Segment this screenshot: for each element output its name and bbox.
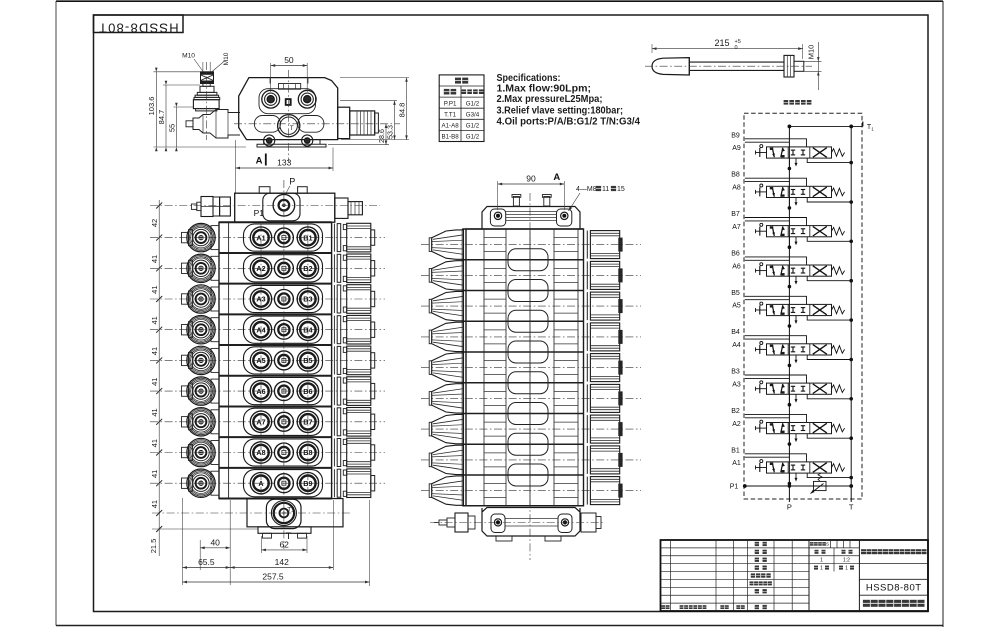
- svg-text:41: 41: [150, 408, 159, 416]
- svg-text:41: 41: [150, 470, 159, 478]
- svg-text:215: 215: [714, 38, 729, 48]
- svg-text:103.6: 103.6: [147, 97, 156, 116]
- svg-text:41: 41: [150, 347, 159, 355]
- svg-text:T: T: [290, 125, 294, 132]
- svg-text:P.P1: P.P1: [444, 100, 457, 107]
- svg-text:HSSD8-80T: HSSD8-80T: [866, 583, 922, 594]
- svg-text:41: 41: [150, 439, 159, 447]
- svg-text:A3: A3: [732, 381, 741, 388]
- svg-text:21.5: 21.5: [149, 539, 158, 554]
- svg-text:B4: B4: [731, 329, 740, 336]
- svg-text:A4: A4: [732, 342, 741, 349]
- svg-text:G1/2: G1/2: [466, 100, 480, 107]
- svg-text:A1: A1: [732, 460, 741, 467]
- svg-text:84.8: 84.8: [398, 103, 407, 118]
- svg-text:B6: B6: [731, 250, 740, 257]
- svg-text:1: 1: [820, 557, 823, 563]
- svg-text:15: 15: [617, 186, 625, 193]
- svg-text:G3/4: G3/4: [466, 112, 480, 119]
- svg-text:B3: B3: [731, 369, 740, 376]
- svg-text:P: P: [289, 177, 295, 187]
- svg-text:A8: A8: [732, 185, 741, 192]
- svg-text:P: P: [787, 503, 792, 512]
- svg-text:A: A: [553, 172, 560, 183]
- svg-text:2.Max pressureL25Mpa;: 2.Max pressureL25Mpa;: [497, 93, 603, 105]
- svg-text:142: 142: [275, 557, 289, 567]
- svg-text:B8: B8: [731, 172, 740, 179]
- svg-text:41: 41: [150, 255, 159, 263]
- svg-text:55: 55: [167, 124, 176, 132]
- svg-text:B2: B2: [731, 408, 740, 415]
- svg-text:A5: A5: [732, 303, 741, 310]
- svg-text:B7: B7: [731, 211, 740, 218]
- svg-text:1:2: 1:2: [843, 557, 850, 563]
- svg-text:41: 41: [150, 285, 159, 293]
- svg-text:T: T: [849, 503, 854, 512]
- svg-text:T.T1: T.T1: [444, 112, 457, 119]
- svg-text:41: 41: [150, 500, 159, 508]
- svg-text:A6: A6: [732, 263, 741, 270]
- svg-text:A: A: [256, 156, 263, 167]
- svg-text:11: 11: [602, 186, 609, 193]
- svg-text:40: 40: [210, 537, 220, 547]
- svg-text:84.7: 84.7: [157, 110, 166, 125]
- svg-text:4—M8: 4—M8: [576, 186, 597, 193]
- svg-text:A1-A8: A1-A8: [441, 123, 459, 130]
- svg-text:A7: A7: [732, 224, 741, 231]
- svg-text:G1/2: G1/2: [466, 123, 480, 130]
- svg-text:0: 0: [735, 45, 738, 51]
- svg-text:G1/2: G1/2: [466, 134, 480, 141]
- svg-text:90: 90: [526, 174, 536, 184]
- svg-text:1: 1: [820, 565, 823, 571]
- svg-text:B5: B5: [731, 290, 740, 297]
- svg-text:M10: M10: [182, 53, 195, 60]
- svg-text:P1: P1: [254, 208, 265, 218]
- svg-text:4.Oil ports:P/A/B:G1/2 T/N:G3: 4.Oil ports:P/A/B:G1/2 T/N:G3/4: [497, 116, 641, 128]
- svg-text:65.5: 65.5: [198, 557, 215, 567]
- svg-text:B9: B9: [731, 132, 740, 139]
- svg-text:B1-B8: B1-B8: [441, 134, 459, 141]
- svg-text:B1: B1: [731, 447, 740, 454]
- svg-text:M10: M10: [807, 45, 816, 60]
- svg-text:62: 62: [279, 539, 289, 549]
- svg-text:P1: P1: [730, 484, 739, 491]
- svg-text:42: 42: [150, 219, 159, 227]
- svg-text:41: 41: [150, 378, 159, 386]
- svg-text:M10: M10: [223, 52, 230, 65]
- svg-text:T1: T1: [287, 507, 295, 514]
- svg-text:28.6: 28.6: [377, 129, 386, 143]
- svg-text:133: 133: [277, 158, 291, 168]
- svg-text:S: S: [826, 541, 829, 546]
- svg-text:A9: A9: [732, 145, 741, 152]
- svg-text:50: 50: [284, 55, 294, 65]
- svg-text:41: 41: [150, 316, 159, 324]
- svg-text:257.5: 257.5: [262, 572, 284, 582]
- svg-text:A2: A2: [732, 421, 741, 428]
- svg-text:HSSD8-80T: HSSD8-80T: [98, 20, 179, 35]
- svg-text:1: 1: [845, 565, 848, 571]
